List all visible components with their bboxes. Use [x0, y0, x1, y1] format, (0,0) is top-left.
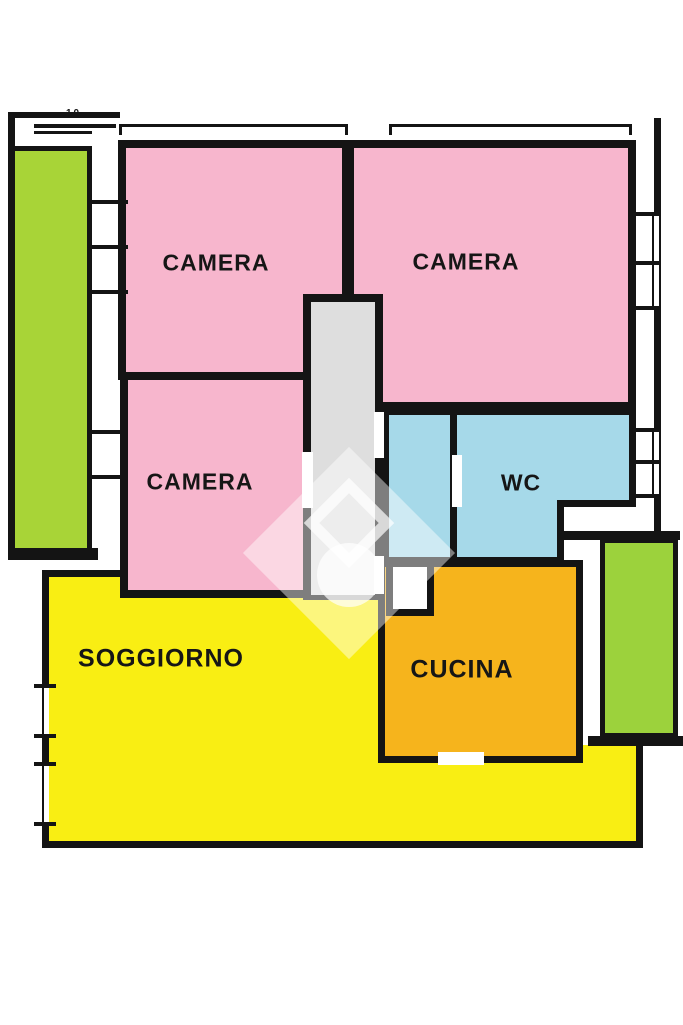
dimension-tick: [345, 124, 348, 135]
window-opening: [44, 764, 49, 824]
room-label-wc: WC: [501, 470, 541, 497]
wall-left-outer: [8, 112, 15, 558]
window-opening: [44, 686, 49, 736]
room-label-camera-top-right: CAMERA: [413, 249, 520, 276]
door-opening: [374, 412, 384, 458]
dimension-line: [120, 124, 348, 127]
door-opening: [452, 455, 462, 507]
window-sill: [34, 734, 56, 738]
window-sill: [92, 475, 128, 479]
door-opening: [374, 556, 384, 594]
balcony-right: [600, 538, 678, 738]
window-sill: [634, 212, 661, 216]
window-sill: [34, 762, 56, 766]
dimension-line: [390, 124, 632, 127]
dimension-tick: [389, 124, 392, 135]
dimension-tick: [629, 124, 632, 135]
door-opening: [302, 452, 313, 508]
window-sill: [634, 428, 661, 432]
window: [659, 430, 661, 498]
dimension-tick: [119, 124, 122, 135]
window-sill: [92, 290, 128, 294]
dimension-stub: [34, 124, 116, 128]
wall-balcony-right-top: [560, 531, 680, 540]
window: [652, 430, 654, 498]
corridor: [303, 294, 383, 600]
floor-plan: 10 CAMERA CAMERA CAMERA WC SOGGIORNO CUC…: [0, 0, 683, 1025]
window-sill: [634, 460, 661, 464]
room-label-camera-top-left: CAMERA: [163, 250, 270, 277]
wall-balcony-right-bottom: [588, 736, 683, 746]
room-label-cucina: CUCINA: [410, 656, 513, 685]
window-sill: [634, 261, 661, 265]
wall-top-left: [8, 112, 120, 118]
dimension-label: 10: [66, 108, 81, 119]
room-label-camera-mid-left: CAMERA: [147, 469, 254, 496]
wall-right-outer: [654, 498, 661, 535]
window-sill: [92, 245, 128, 249]
window-sill: [634, 494, 661, 498]
wall-right-outer: [654, 118, 661, 215]
balcony-left: [8, 146, 92, 558]
window-sill: [634, 306, 661, 310]
dimension-stub: [34, 131, 92, 134]
window-sill: [34, 684, 56, 688]
door-opening: [438, 752, 484, 765]
room-label-soggiorno: SOGGIORNO: [78, 645, 244, 674]
window-sill: [92, 430, 128, 434]
wall-balcony-left-bottom: [8, 548, 98, 560]
wall-right-outer: [654, 310, 661, 430]
shaft: [386, 560, 434, 616]
window-sill: [34, 822, 56, 826]
window-sill: [92, 200, 128, 204]
